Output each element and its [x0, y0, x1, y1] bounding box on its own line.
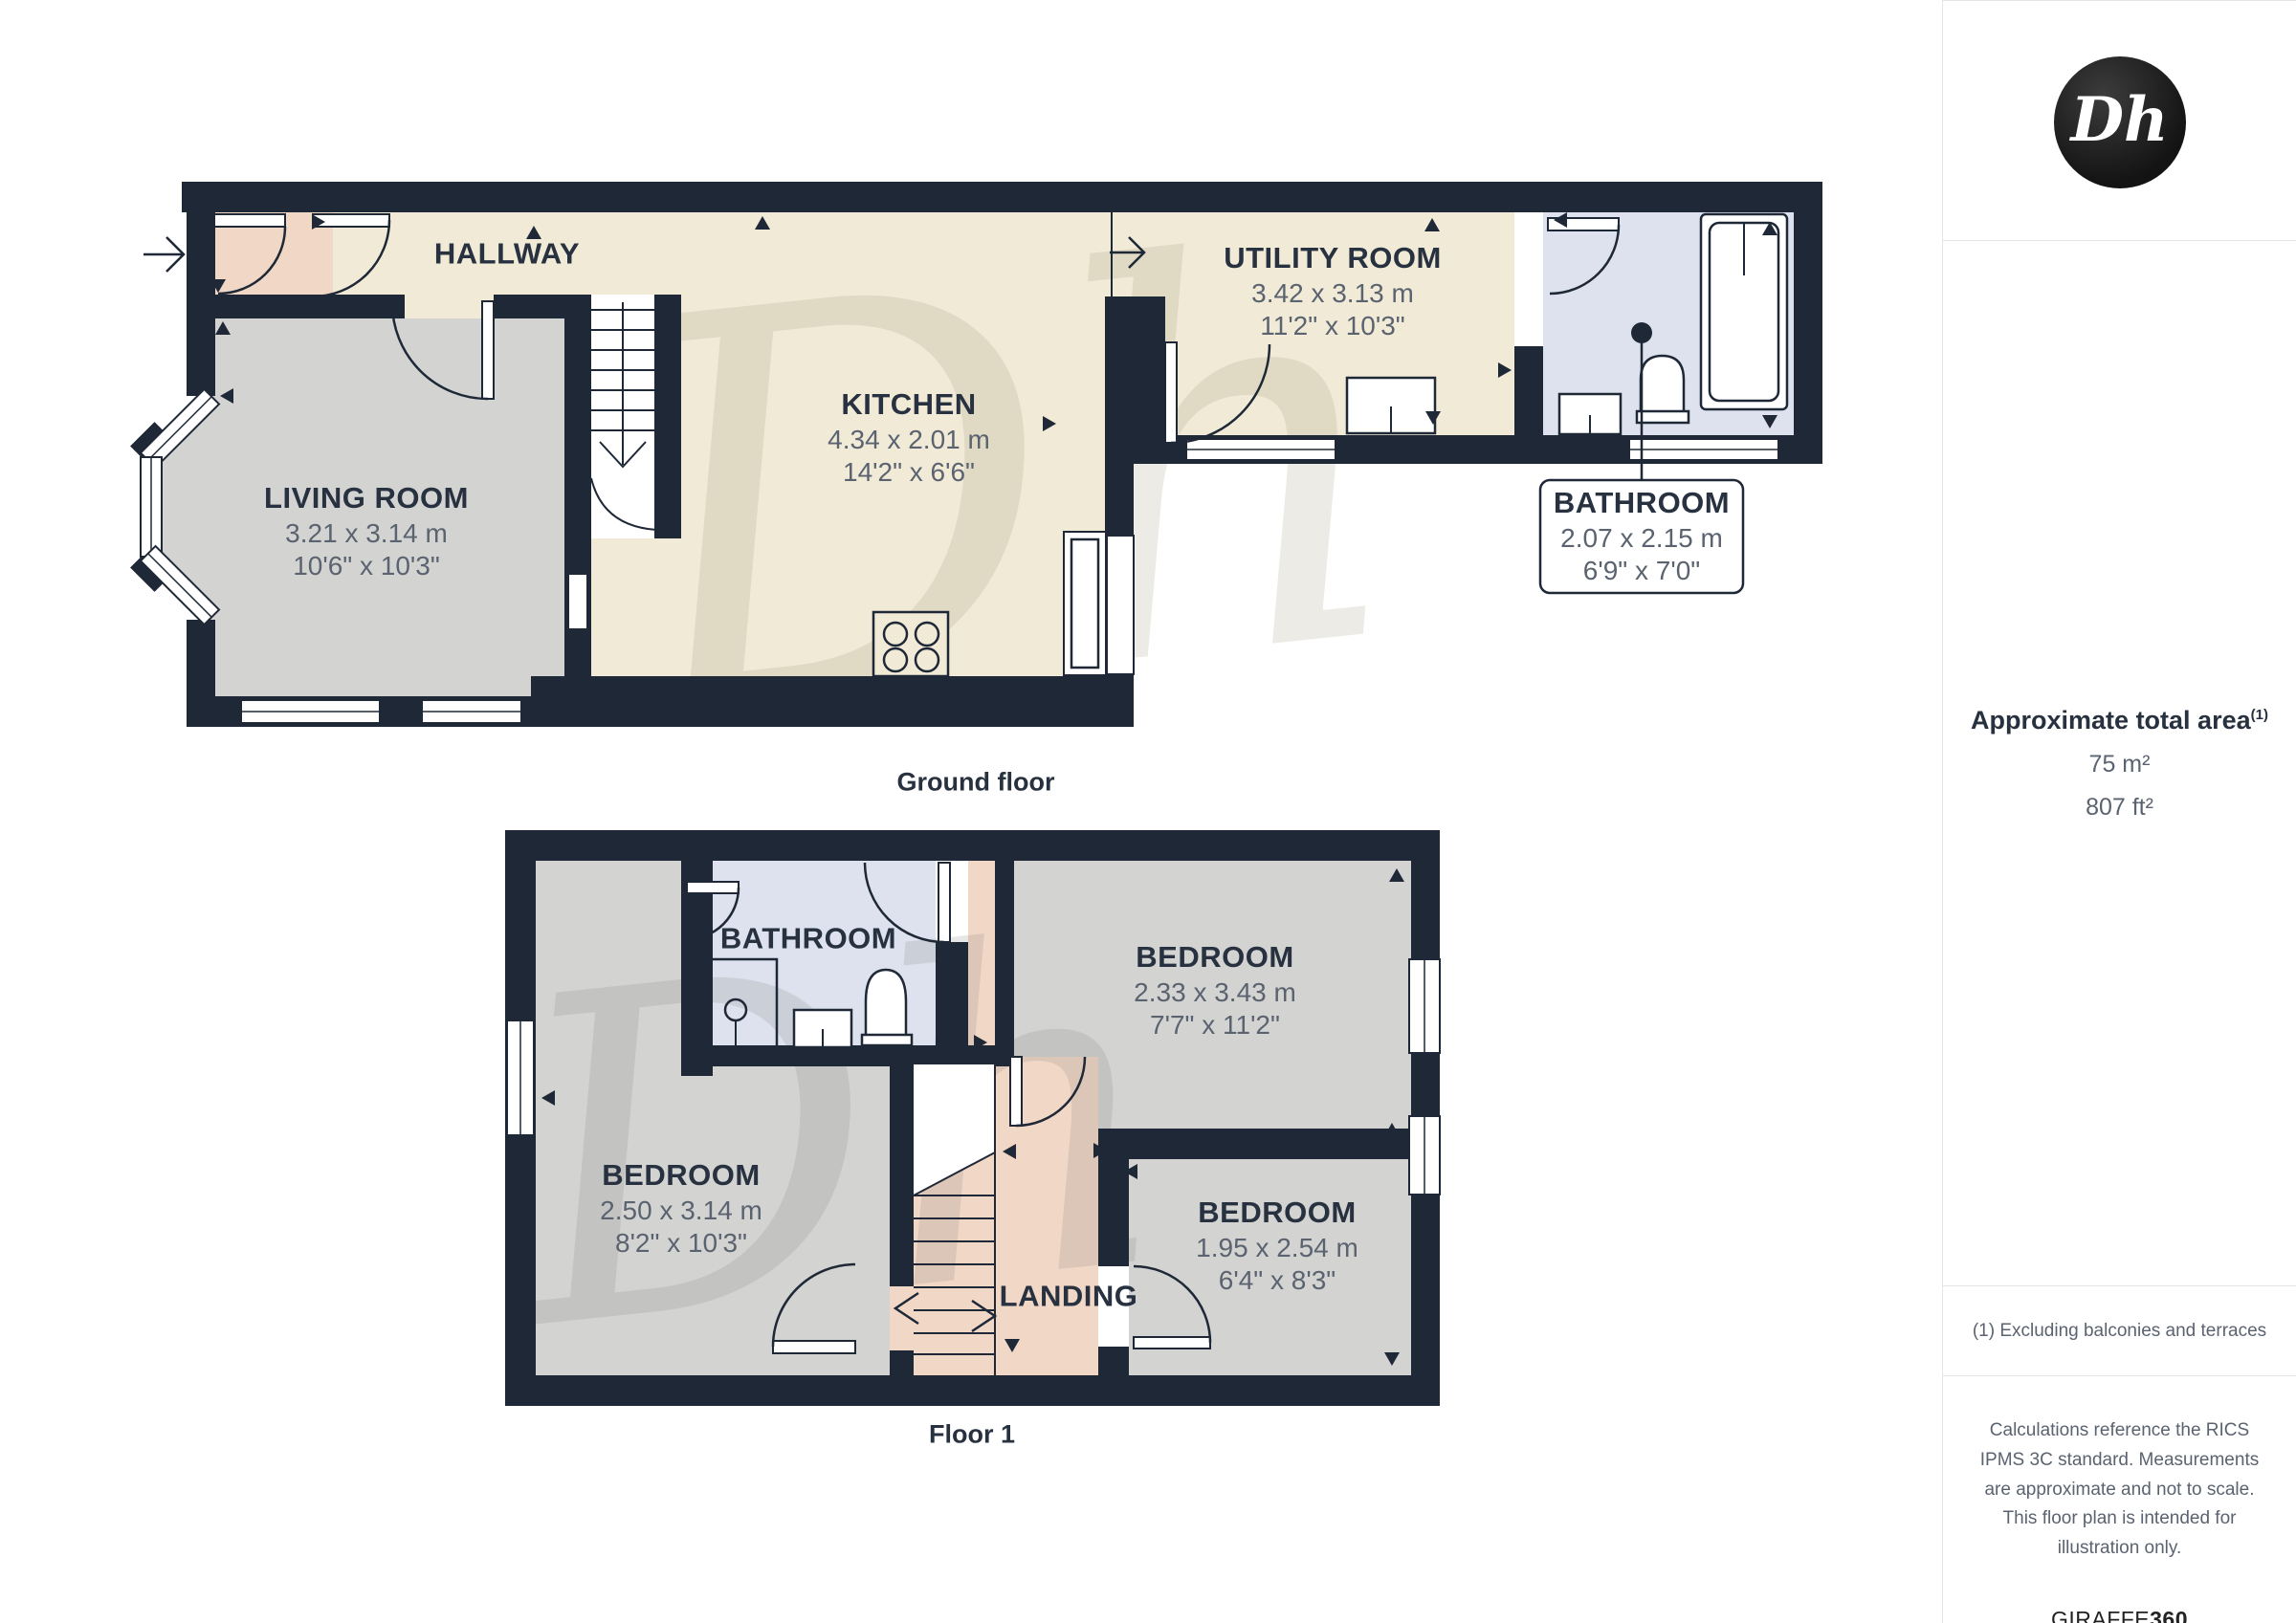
- toilet-icon: [1637, 356, 1689, 423]
- brand-logo: GIRAFFE360: [1968, 1602, 2271, 1623]
- room-label-bedroom-small: BEDROOM 1.95 x 2.54 m 6'4" x 8'3": [1196, 1195, 1358, 1298]
- room-label-bathroom-f1: BATHROOM: [720, 921, 896, 958]
- agency-logo-text: Dh: [2070, 84, 2168, 156]
- room-dim-imperial: 6'4" x 8'3": [1196, 1264, 1358, 1298]
- total-area-title: Approximate total area(1): [1971, 706, 2268, 735]
- caption-ground-floor: Ground floor: [897, 768, 1055, 798]
- washing-machine-icon: [1347, 378, 1435, 433]
- disclaimer-text: Calculations reference the RICS IPMS 3C …: [1980, 1420, 2259, 1558]
- room-dim-metric: 3.42 x 3.13 m: [1224, 277, 1442, 311]
- total-area-title-sup: (1): [2251, 707, 2268, 723]
- room-name: KITCHEN: [828, 386, 990, 424]
- room-dim-metric: 2.50 x 3.14 m: [600, 1195, 762, 1228]
- total-area-title-text: Approximate total area: [1971, 706, 2251, 735]
- total-area-section: Approximate total area(1) 75 m² 807 ft²: [1943, 241, 2296, 1286]
- bathtub-icon: [1701, 214, 1787, 409]
- room-dim-imperial: 8'2" x 10'3": [600, 1227, 762, 1261]
- room-dim-imperial: 6'9" x 7'0": [1554, 555, 1730, 588]
- room-label-bedroom-front: BEDROOM 2.50 x 3.14 m 8'2" x 10'3": [600, 1157, 762, 1261]
- room-label-bathroom-callout: BATHROOM 2.07 x 2.15 m 6'9" x 7'0": [1554, 485, 1730, 588]
- caption-floor-1: Floor 1: [929, 1420, 1015, 1450]
- room-label-living-room: LIVING ROOM 3.21 x 3.14 m 10'6" x 10'3": [264, 480, 469, 583]
- total-area-metric: 75 m²: [2089, 751, 2151, 779]
- room-dim-metric: 3.21 x 3.14 m: [264, 517, 469, 551]
- room-name: UTILITY ROOM: [1224, 240, 1442, 277]
- room-dim-metric: 2.33 x 3.43 m: [1134, 976, 1296, 1010]
- room-label-landing: LANDING: [1000, 1279, 1138, 1316]
- room-dim-imperial: 10'6" x 10'3": [264, 550, 469, 583]
- room-name: HALLWAY: [434, 236, 580, 274]
- room-label-hallway: HALLWAY: [434, 236, 580, 274]
- brand-suffix: 360: [2150, 1607, 2188, 1623]
- footnote: (1) Excluding balconies and terraces: [1943, 1286, 2296, 1376]
- brand-name: GIRAFFE: [2051, 1607, 2150, 1623]
- room-dim-metric: 1.95 x 2.54 m: [1196, 1232, 1358, 1265]
- sink-icon: [794, 1010, 851, 1047]
- room-dim-metric: 2.07 x 2.15 m: [1554, 522, 1730, 556]
- room-name: BEDROOM: [1134, 939, 1296, 976]
- info-sidebar: Dh Approximate total area(1) 75 m² 807 f…: [1942, 0, 2296, 1623]
- logo-section: Dh: [1943, 1, 2296, 241]
- disclaimer-section: Calculations reference the RICS IPMS 3C …: [1943, 1376, 2296, 1623]
- room-name: BATHROOM: [1554, 485, 1730, 522]
- room-label-utility-room: UTILITY ROOM 3.42 x 3.13 m 11'2" x 10'3": [1224, 240, 1442, 343]
- entrance-arrow-icon: [143, 237, 184, 272]
- room-dim-imperial: 7'7" x 11'2": [1134, 1009, 1296, 1042]
- floorplan-page: Dh: [0, 0, 2296, 1623]
- total-area-imperial: 807 ft²: [2086, 794, 2153, 822]
- room-label-kitchen: KITCHEN 4.34 x 2.01 m 14'2" x 6'6": [828, 386, 990, 490]
- room-name: BEDROOM: [1196, 1195, 1358, 1232]
- sink-icon: [1559, 394, 1621, 434]
- room-name: LANDING: [1000, 1279, 1138, 1316]
- first-floor-plan: Dh: [483, 830, 1440, 1431]
- room-name: BATHROOM: [720, 921, 896, 958]
- room-name: BEDROOM: [600, 1157, 762, 1195]
- agency-logo: Dh: [2054, 56, 2186, 188]
- room-label-bedroom-rear: BEDROOM 2.33 x 3.43 m 7'7" x 11'2": [1134, 939, 1296, 1042]
- stove-icon: [873, 612, 948, 676]
- room-dim-metric: 4.34 x 2.01 m: [828, 424, 990, 457]
- room-dim-imperial: 11'2" x 10'3": [1224, 310, 1442, 343]
- room-dim-imperial: 14'2" x 6'6": [828, 456, 990, 490]
- room-name: LIVING ROOM: [264, 480, 469, 517]
